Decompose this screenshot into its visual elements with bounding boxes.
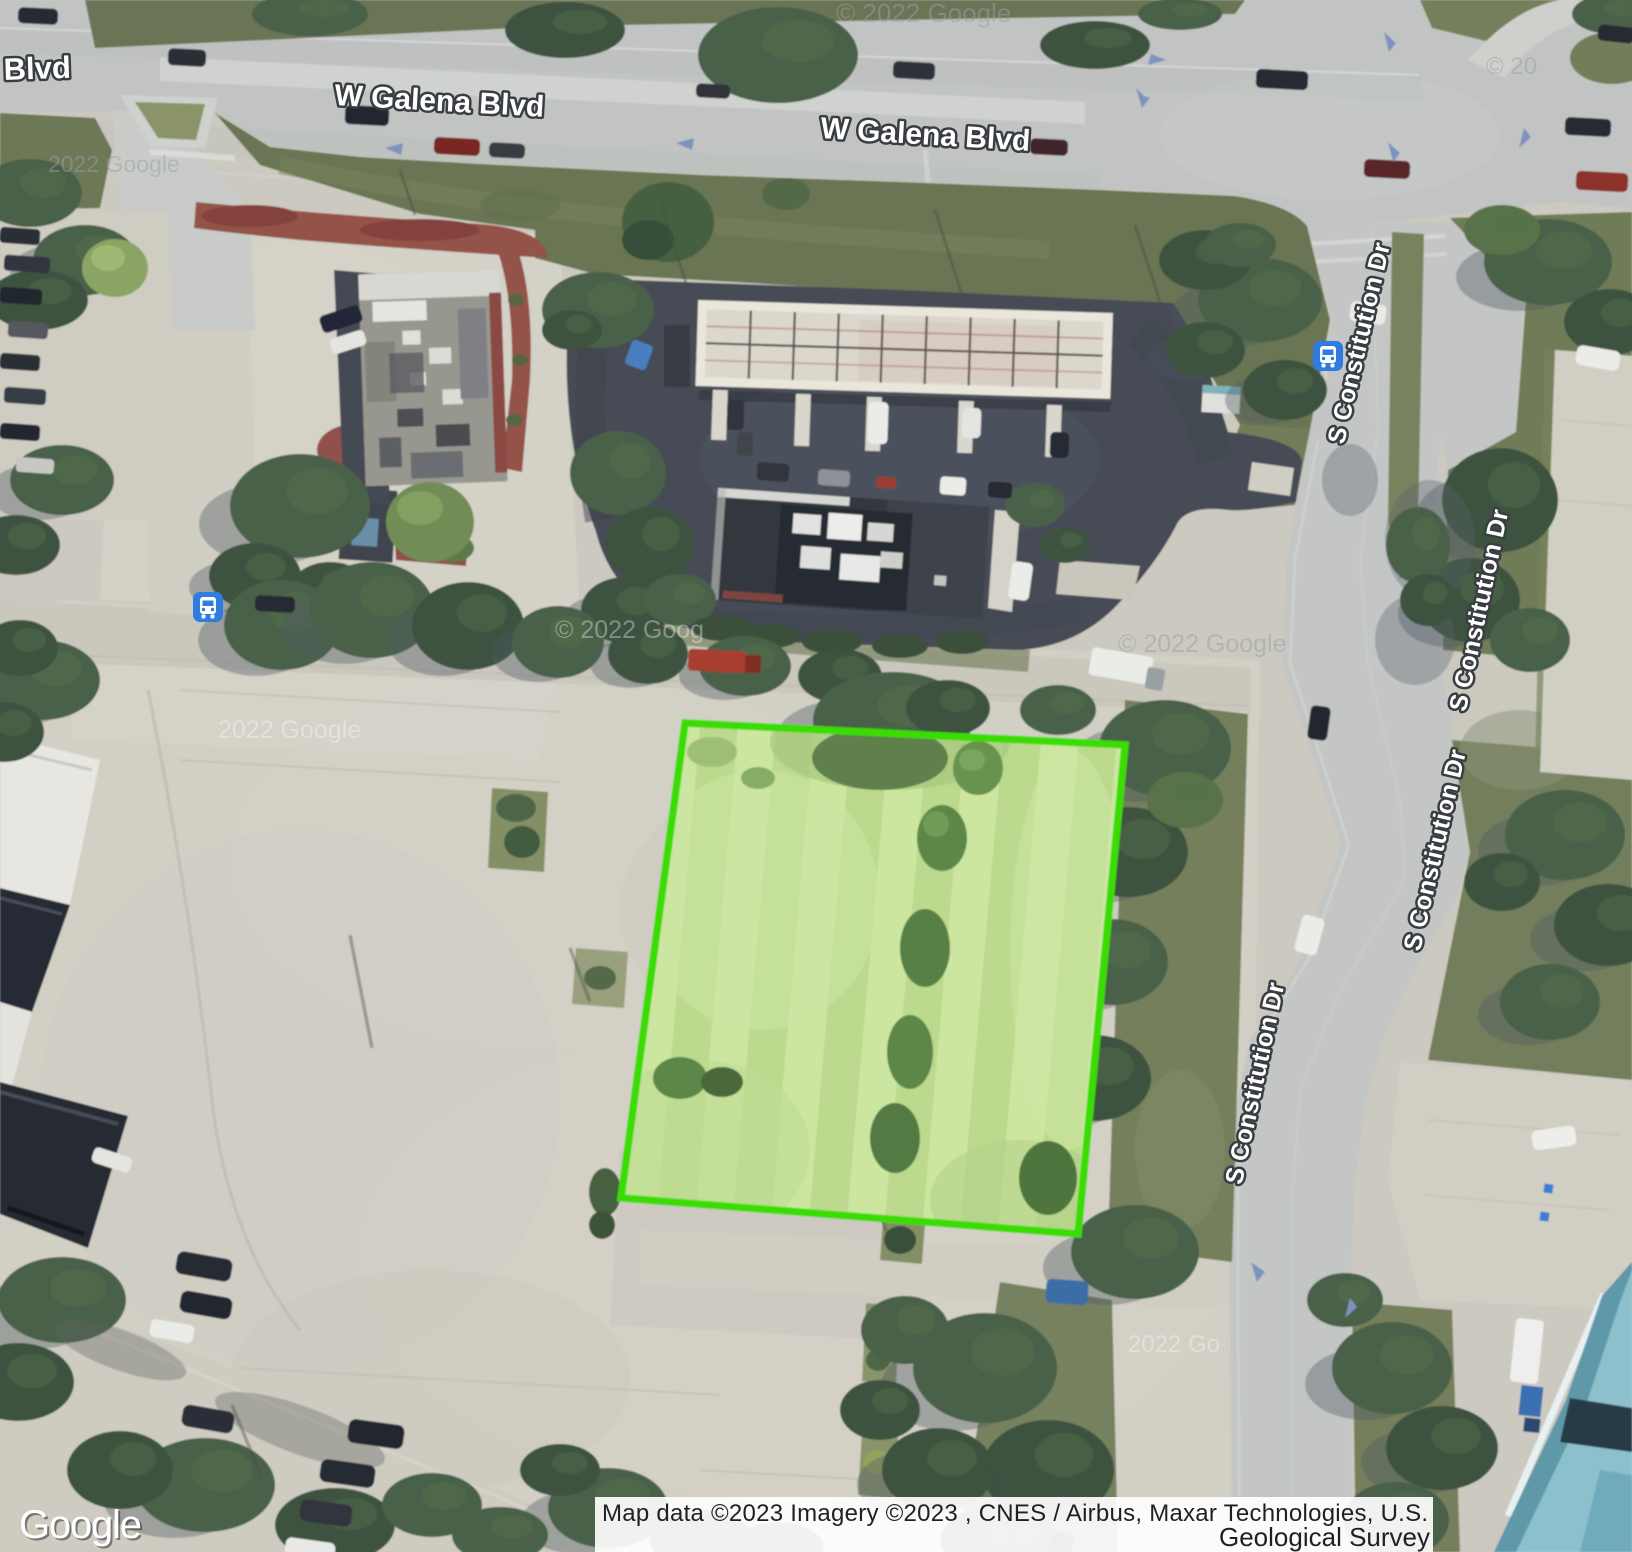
svg-text:Geological Survey: Geological Survey	[1219, 1522, 1430, 1552]
svg-text:© 2022 Google: © 2022 Google	[836, 0, 1011, 28]
svg-text:Blvd: Blvd	[3, 50, 71, 87]
svg-text:Google: Google	[19, 1503, 141, 1547]
svg-text:© 20: © 20	[1486, 53, 1537, 80]
svg-text:2022 Google: 2022 Google	[218, 716, 361, 744]
svg-text:2022 Go: 2022 Go	[1128, 1331, 1220, 1358]
svg-text:2022 Google: 2022 Google	[48, 151, 180, 177]
svg-text:© 2022 Google: © 2022 Google	[1118, 630, 1287, 658]
svg-text:© 2022 Goog: © 2022 Goog	[555, 616, 704, 644]
